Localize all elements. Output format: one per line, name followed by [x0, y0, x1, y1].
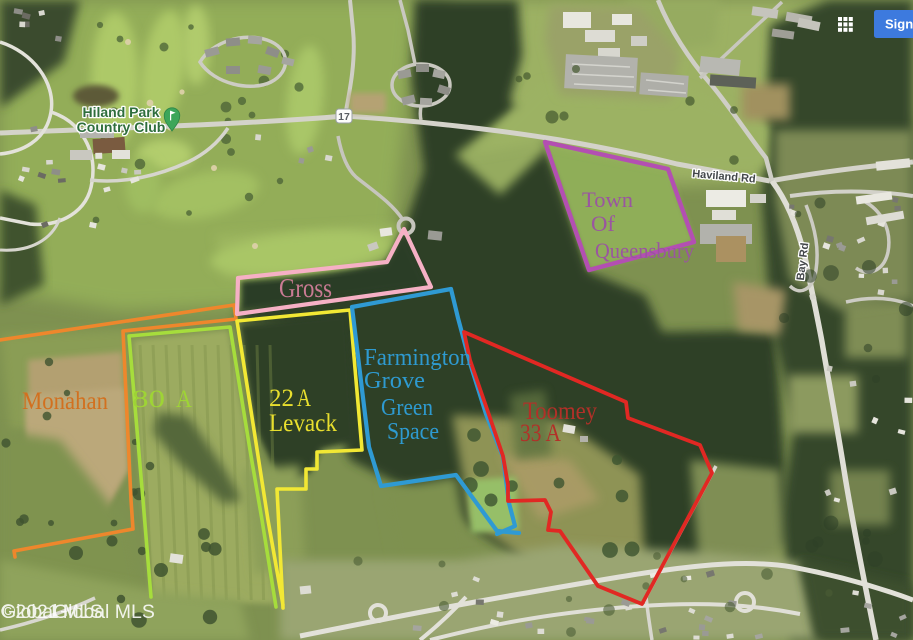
svg-text:Grove: Grove — [364, 368, 425, 394]
svg-text:22: 22 — [269, 385, 294, 412]
svg-text:33 A: 33 A — [520, 420, 561, 447]
svg-text:Green: Green — [381, 395, 433, 421]
svg-text:Global MLS: Global MLS — [53, 601, 155, 623]
svg-text:Space: Space — [387, 419, 439, 445]
svg-text:Sign: Sign — [885, 17, 913, 32]
svg-text:Monahan: Monahan — [22, 388, 108, 415]
svg-text:80: 80 — [132, 386, 165, 413]
svg-text:Of: Of — [591, 211, 616, 236]
svg-text:17: 17 — [338, 111, 350, 123]
svg-text:A: A — [297, 385, 311, 412]
svg-text:Levack: Levack — [269, 410, 337, 437]
svg-text:A: A — [176, 386, 192, 413]
svg-text:Gross: Gross — [279, 273, 332, 303]
svg-text:Queensbury: Queensbury — [595, 238, 695, 263]
svg-text:Town: Town — [582, 187, 633, 212]
svg-text:Hiland Park: Hiland Park — [82, 104, 159, 120]
svg-text:Country Club: Country Club — [77, 119, 166, 135]
